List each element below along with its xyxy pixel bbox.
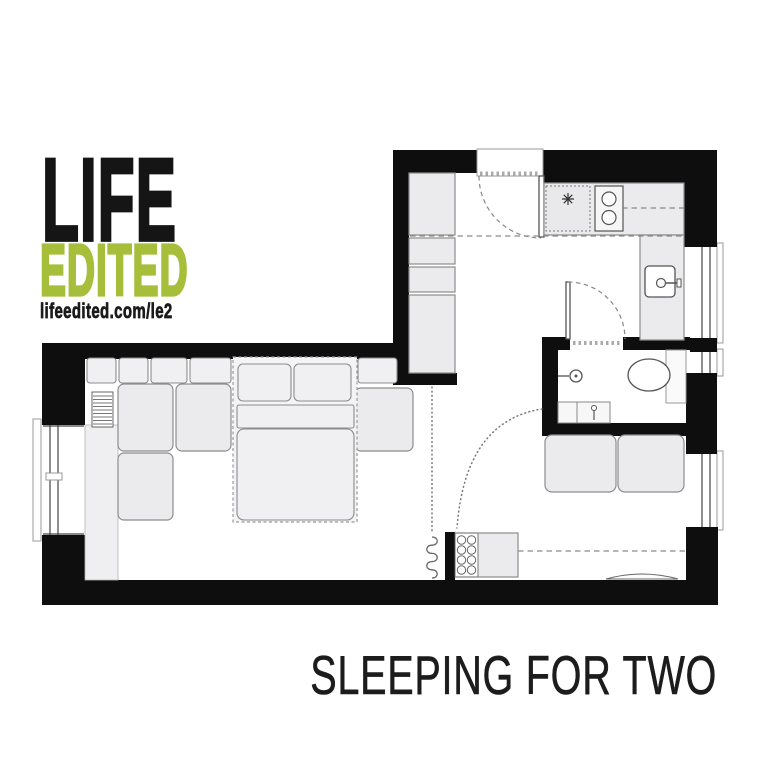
bench-sofa-cushion <box>618 435 684 492</box>
plan-caption: SLEEPING FOR TWO <box>310 648 717 703</box>
brand-title-edited: EDITED <box>40 235 189 307</box>
faucet-icon <box>657 279 666 288</box>
burner-icon <box>602 211 616 225</box>
freezer-asterisk-icon <box>562 193 574 205</box>
folded-duvet <box>237 405 354 428</box>
storage-cabinet <box>478 533 518 577</box>
sofa-bed <box>233 357 357 522</box>
washbasin-cabinet <box>558 402 577 423</box>
burner-icon <box>602 192 616 206</box>
bathroom-door-leaf <box>566 282 570 339</box>
window-bench <box>85 425 118 580</box>
bench-sofa-cushion <box>545 435 616 492</box>
wardrobe-closet <box>409 173 455 373</box>
pillow <box>238 364 291 401</box>
poster: LIFE EDITED lifeedited.com/le2 SLEEPING … <box>0 0 760 760</box>
door-leaf <box>539 176 544 237</box>
pillow <box>294 364 351 401</box>
brand-website: lifeedited.com/le2 <box>40 301 173 322</box>
basin-tap-icon <box>592 406 597 411</box>
toilet-icon <box>628 359 670 391</box>
mattress <box>237 429 354 520</box>
radiator-icon <box>455 533 478 577</box>
refrigerator-icon <box>546 186 590 231</box>
